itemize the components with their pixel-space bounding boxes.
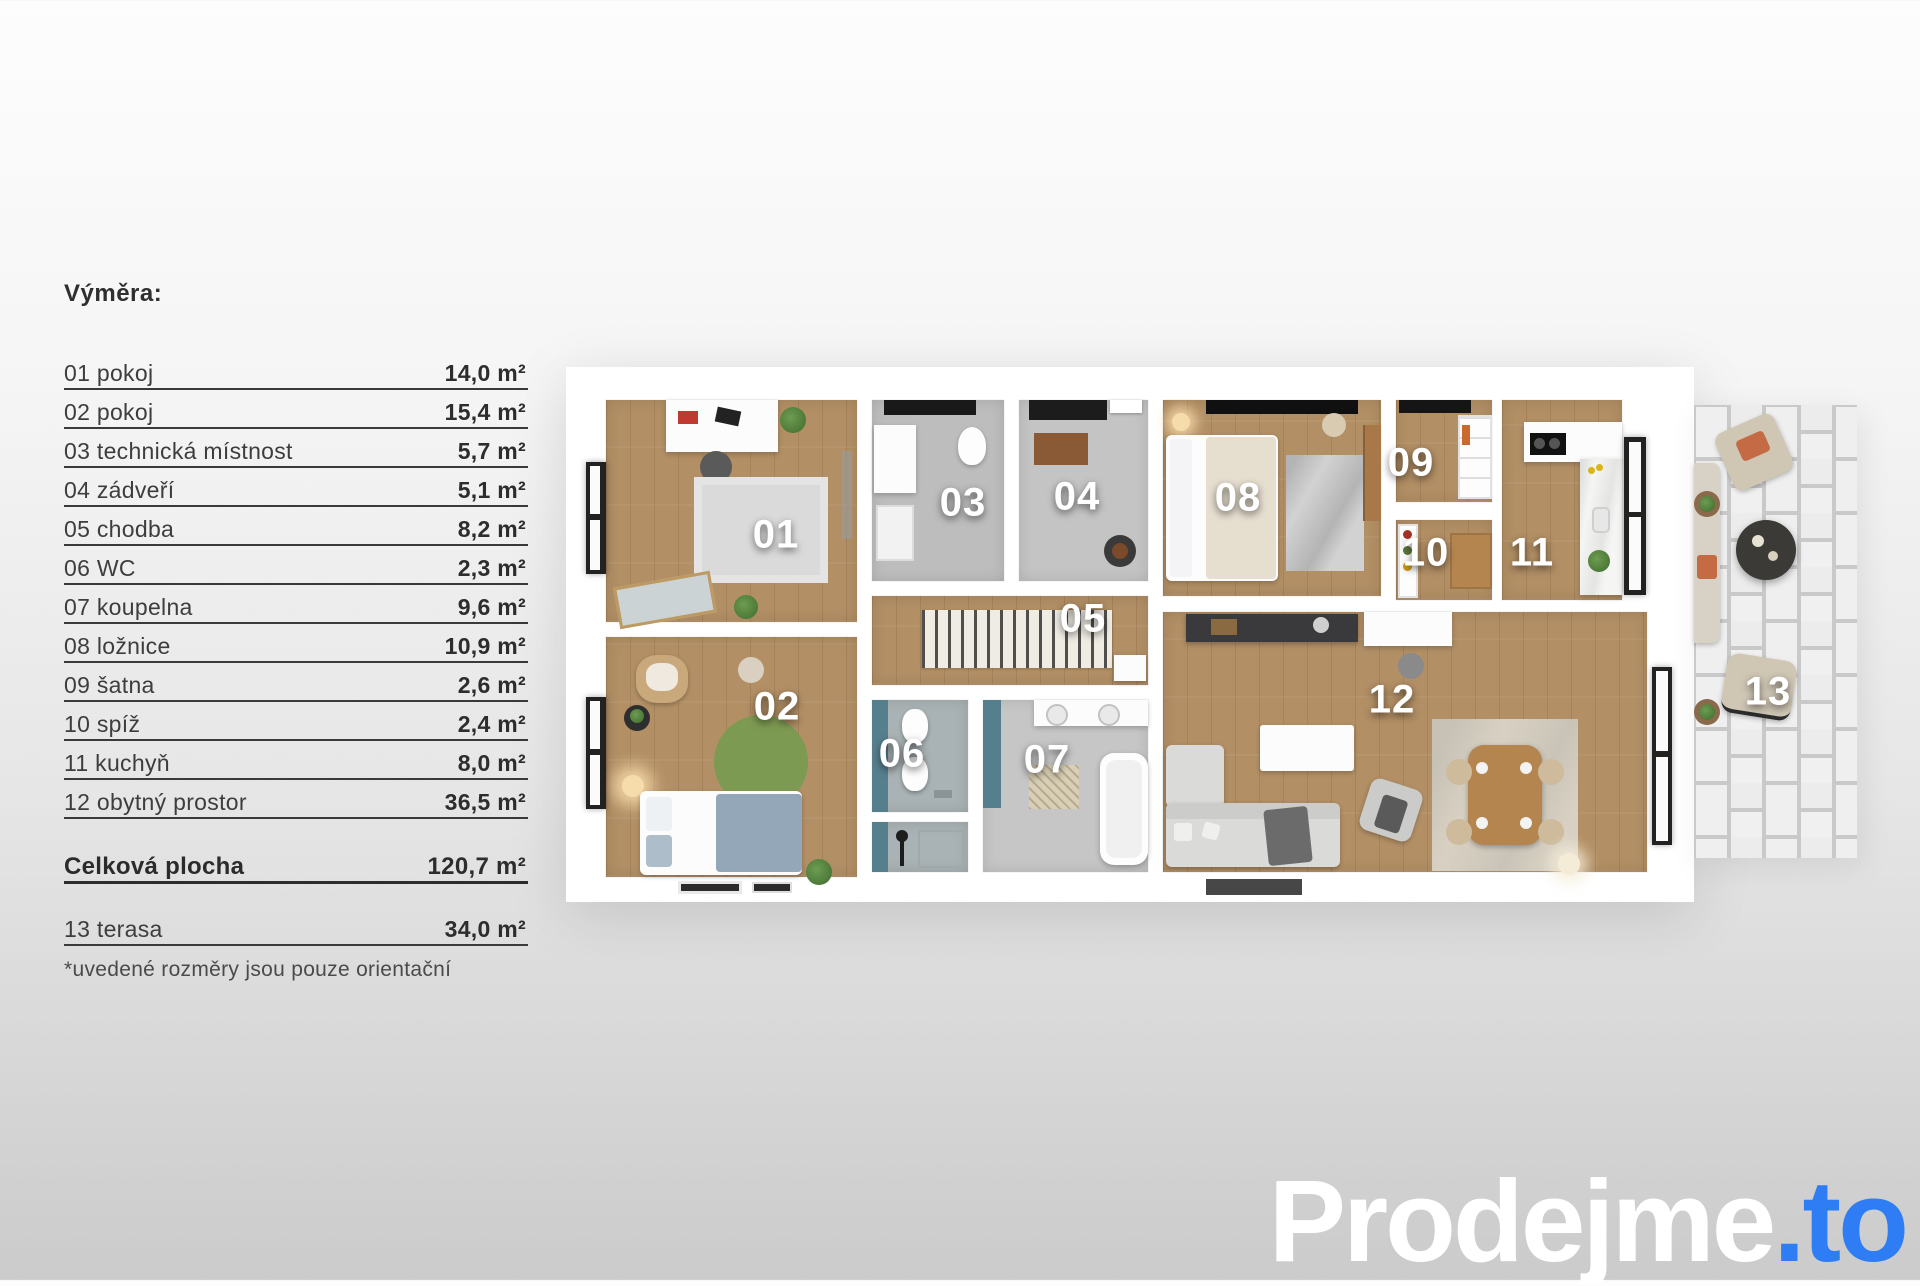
counter [1450,533,1492,589]
plant [1699,496,1715,512]
armchair-cushion [646,663,678,691]
chair-seat [1112,543,1128,559]
plant [806,859,832,885]
legend-total-row: Celková plocha120,7 m² [64,855,528,884]
sofa-chaise [1166,745,1224,807]
outdoor-sofa [1694,463,1720,643]
floor-plan: 01 02 03 04 05 06 07 08 09 10 11 12 [566,367,1694,902]
clothes-rack [842,451,852,539]
coffee-table [1736,520,1796,580]
room-label: 05 chodba [64,518,174,541]
legend-row: 07 koupelna9,6 m² [64,596,528,624]
terrace-area: 34,0 m² [445,918,526,941]
room-area: 5,1 m² [458,479,526,502]
legend-row: 04 zádveří5,1 m² [64,479,528,507]
throw-blanket [1263,806,1313,866]
shower-tray [918,830,964,868]
room-label: 09 šatna [64,674,155,697]
legend-row: 05 chodba8,2 m² [64,518,528,546]
room-number-08: 08 [1215,476,1262,521]
legend-row: 10 spíž2,4 m² [64,713,528,741]
room-area: 10,9 m² [445,635,526,658]
room-08-loznice [1163,400,1381,596]
legend-title: Výměra: [64,280,528,308]
fruit-bowl [1596,464,1603,471]
room-label: 04 zádveří [64,479,174,502]
door-leaf [1110,400,1142,413]
legend-row: 03 technická místnost5,7 m² [64,440,528,468]
pillow [646,835,672,867]
burner [1534,438,1545,449]
dining-table [1468,745,1542,845]
plate [1520,762,1532,774]
room-area: 5,7 m² [458,440,526,463]
picture-frame [752,882,792,893]
dining-chair [1538,819,1564,845]
room-number-06: 06 [879,732,926,777]
bench [1114,655,1146,681]
basket [1322,413,1346,437]
plate [1476,762,1488,774]
room-area: 2,4 m² [458,713,526,736]
room-area: 8,2 m² [458,518,526,541]
teal-wall [983,700,1001,808]
legend-row: 12 obytný prostor36,5 m² [64,791,528,819]
terrace-door [1624,437,1646,595]
hanging-clothes [1462,425,1470,445]
room-label: 11 kuchyň [64,752,170,775]
bedside-lamp [1172,413,1190,431]
room-label: 10 spíž [64,713,140,736]
burner [1549,438,1560,449]
room-label: 01 pokoj [64,362,153,385]
sink [1046,704,1068,726]
plate [1520,817,1532,829]
sofa-back [1166,803,1340,819]
room-label: 12 obytný prostor [64,791,247,814]
room-number-05: 05 [1060,597,1107,642]
washing-machine [874,425,916,493]
room-area: 2,6 m² [458,674,526,697]
fruit-bowl [1588,467,1595,474]
room-label: 07 koupelna [64,596,193,619]
window-top [1399,400,1471,413]
plant [1588,550,1610,572]
bathtub-inner [1106,760,1142,858]
room-number-07: 07 [1024,738,1071,783]
pillows [1170,439,1192,577]
dining-chair [1446,819,1472,845]
room-number-01: 01 [753,513,800,558]
drying-rack [876,505,914,561]
room-label: 02 pokoj [64,401,153,424]
room-area: 14,0 m² [445,362,526,385]
room-label: 06 WC [64,557,136,580]
cup [1752,535,1764,547]
room-02-pokoj [606,637,857,877]
room-number-02: 02 [754,685,801,730]
legend-rows: 01 pokoj14,0 m² 02 pokoj15,4 m² 03 techn… [64,362,528,819]
room-number-09: 09 [1388,441,1435,486]
logo-accent-text: .to [1773,1156,1906,1286]
terrace-label: 13 terasa [64,918,163,941]
pillow [646,797,672,831]
room-label: 03 technická místnost [64,440,293,463]
sink [1098,704,1120,726]
room-number-11: 11 [1510,531,1554,576]
blanket [716,794,802,872]
shower-area [872,822,968,872]
room-area: 8,0 m² [458,752,526,775]
dining-chair [1446,759,1472,785]
plant [1699,704,1715,720]
legend-row: 02 pokoj15,4 m² [64,401,528,429]
room-label: 08 ložnice [64,635,171,658]
wardrobe [1363,425,1381,521]
legend-row: 08 ložnice10,9 m² [64,635,528,663]
room-number-13: 13 [1745,670,1792,715]
room-12-obytny-prostor [1163,612,1647,872]
legend-panel: Výměra: 01 pokoj14,0 m² 02 pokoj15,4 m² … [64,280,528,982]
doormat [1034,433,1088,465]
plate [1476,817,1488,829]
floor-lamp [1558,853,1580,875]
cup [1768,551,1778,561]
teal-wall [872,822,888,872]
room-07-koupelna [983,700,1148,872]
firewood [1211,619,1237,635]
window [1652,667,1672,845]
window-top [884,400,976,415]
floor-drain [934,790,952,798]
legend-terrace-row: 13 terasa34,0 m² [64,918,528,946]
legend-row: 06 WC2,3 m² [64,557,528,585]
plant [630,709,644,723]
room-number-04: 04 [1054,475,1101,520]
room-01-pokoj [606,400,857,622]
plant [734,595,758,619]
desk [1364,612,1452,646]
legend-footnote: *uvedené rozměry jsou pouze orientační [64,958,528,982]
mirror [613,571,717,629]
decor [1313,617,1329,633]
room-number-12: 12 [1369,678,1416,723]
window [586,462,606,574]
entry-mat [1029,400,1107,420]
legend-row: 11 kuchyň8,0 m² [64,752,528,780]
kitchen-sink [1592,507,1610,533]
room-area: 15,4 m² [445,401,526,424]
pouf [738,657,764,683]
legend-row: 09 šatna2,6 m² [64,674,528,702]
legend-row: 01 pokoj14,0 m² [64,362,528,390]
total-area: 120,7 m² [428,855,526,878]
rug [1286,455,1364,571]
terrace-13: 13 [1694,405,1857,858]
tv-panel [1206,400,1358,414]
window [586,697,606,809]
room-area: 9,6 m² [458,596,526,619]
shower-bar [900,840,904,866]
doormat [1206,879,1302,895]
chair [1398,653,1424,679]
dining-chair [1538,759,1564,785]
desk-accessory [678,411,698,424]
logo-text: Prodejme [1269,1156,1774,1286]
plant [780,407,806,433]
island-table [1260,725,1354,771]
room-area: 36,5 m² [445,791,526,814]
room-area: 2,3 m² [458,557,526,580]
total-label: Celková plocha [64,855,244,878]
sofa-pillow [1174,823,1192,841]
room-number-10: 10 [1403,531,1450,576]
orange-pillow [1697,555,1717,579]
logo: Prodejme.to [1269,1162,1906,1280]
toilet [958,427,986,465]
picture-frame [678,881,742,894]
room-number-03: 03 [940,481,987,526]
